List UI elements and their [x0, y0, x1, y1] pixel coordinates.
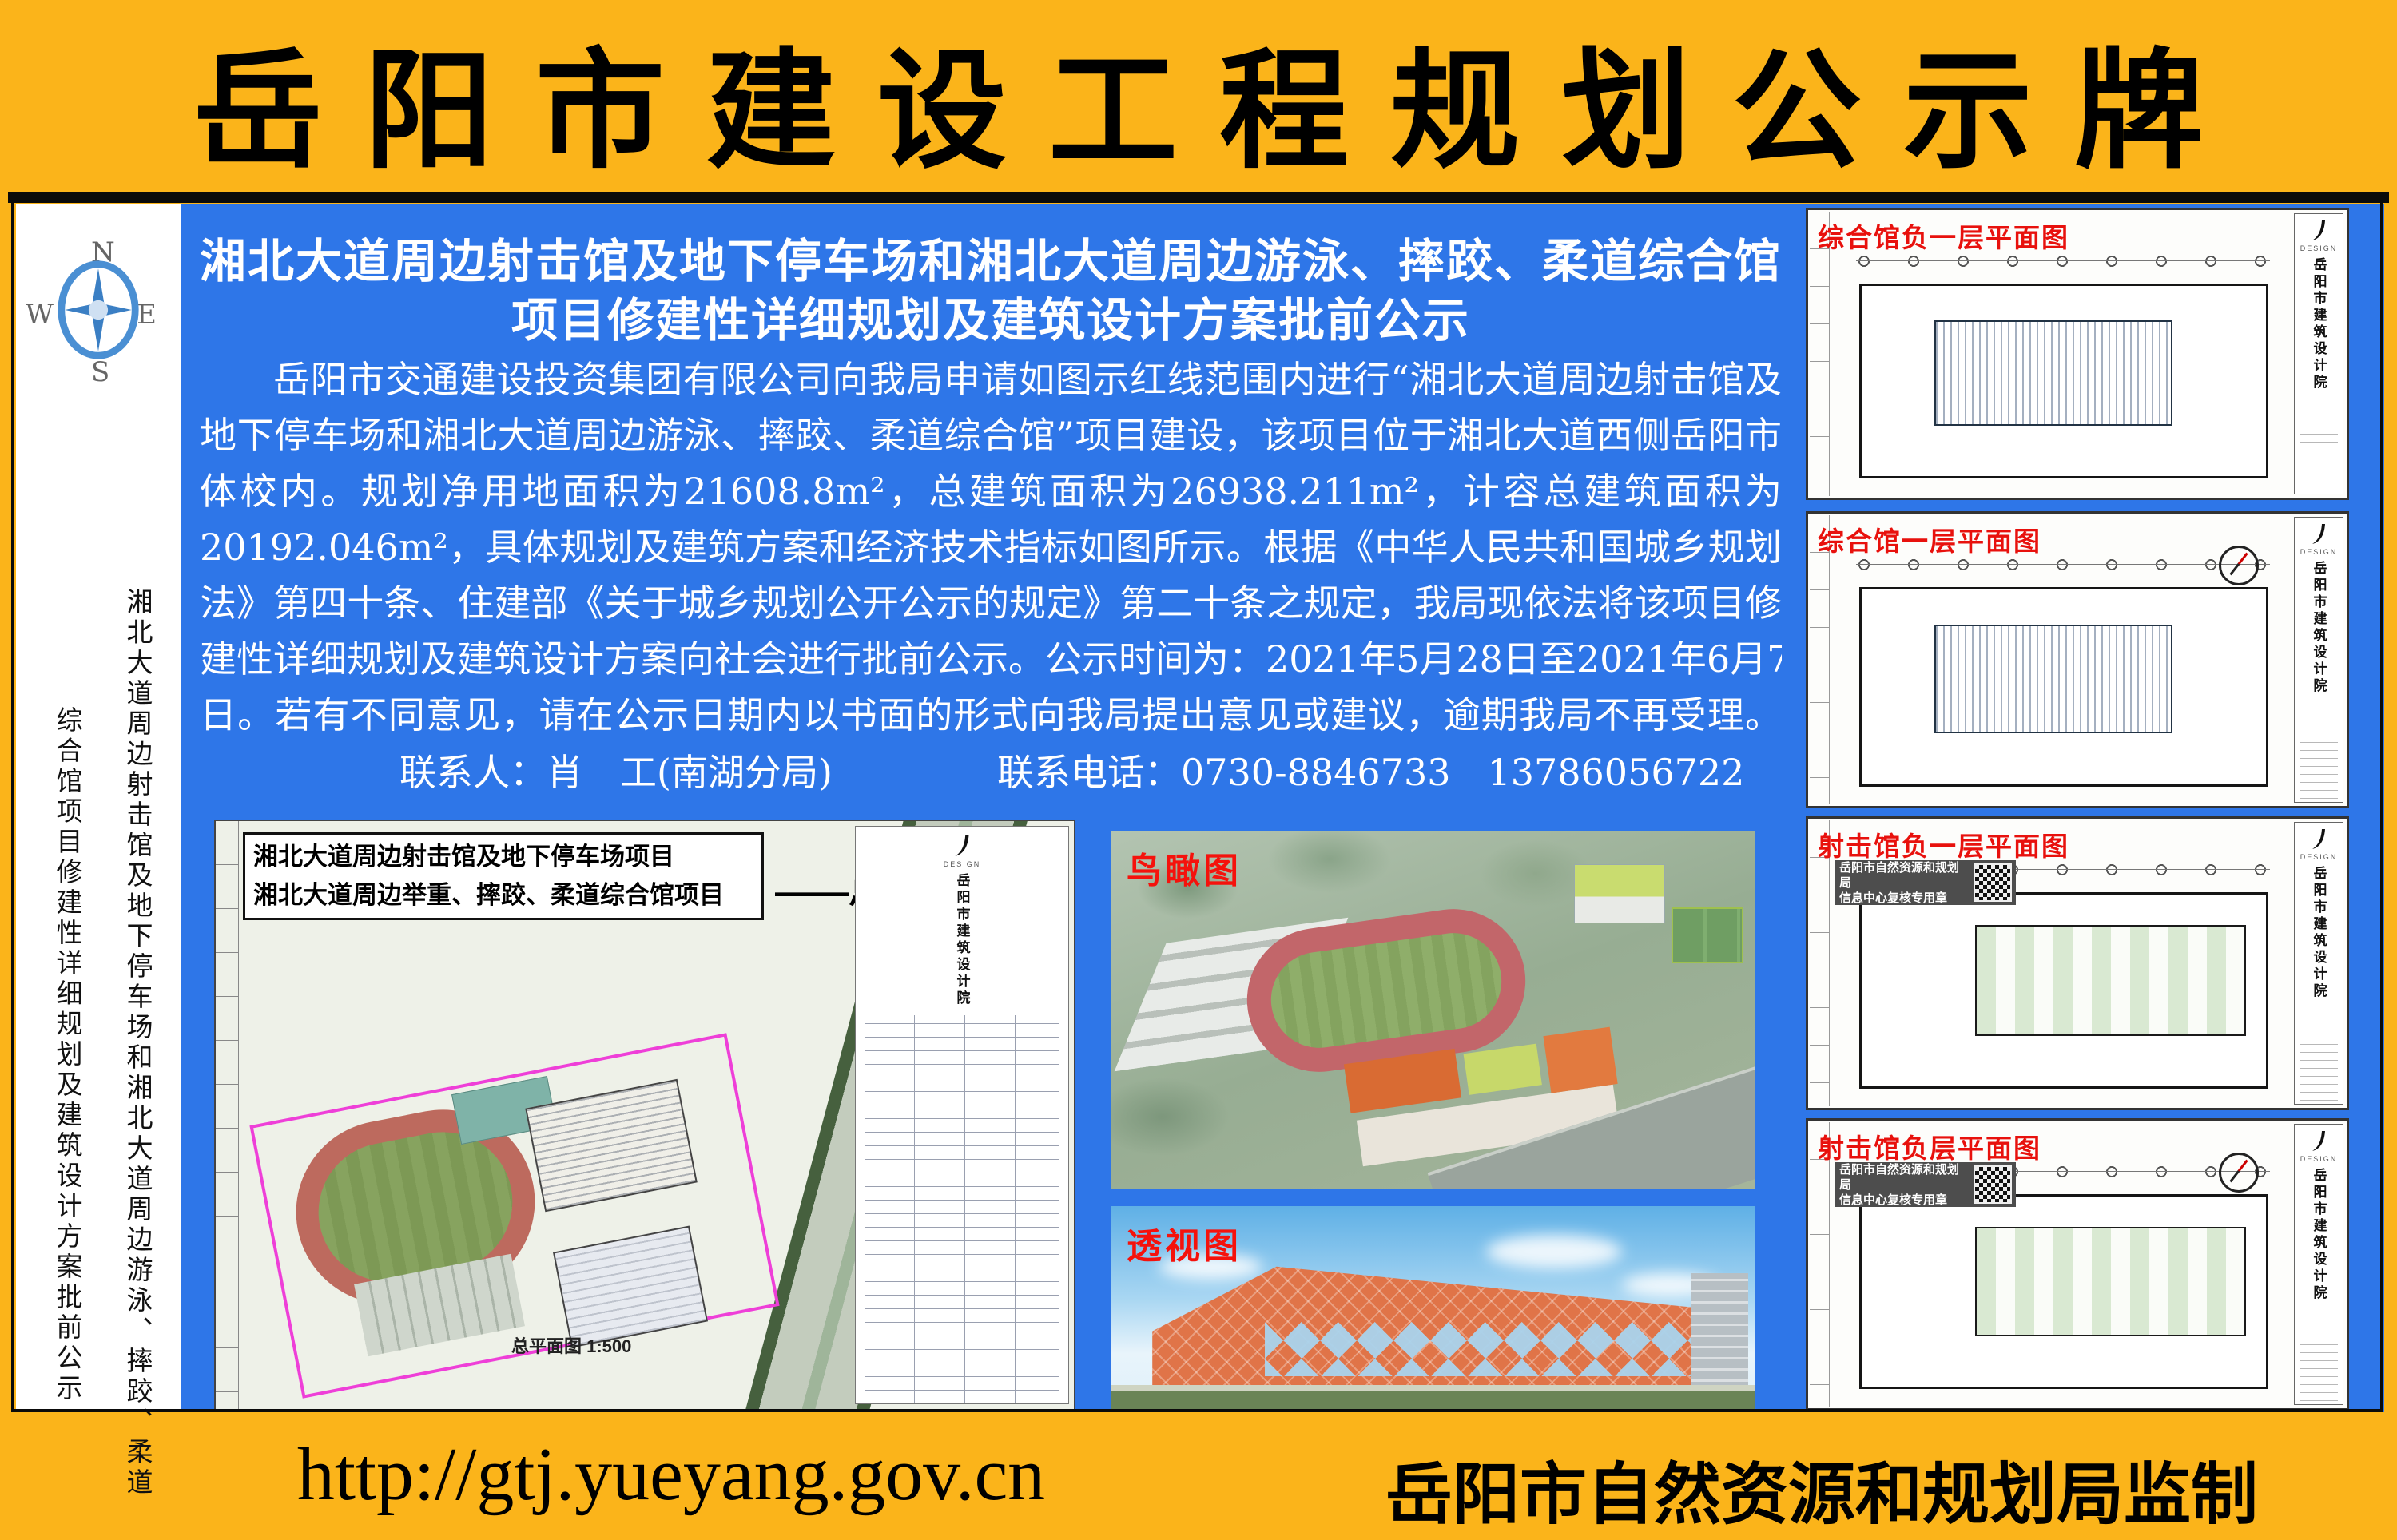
sheet-edge-strip [1810, 515, 1830, 804]
floor-plan-drawing [1859, 284, 2268, 478]
site-plan-header: 湘北大道周边射击馆及地下停车场项目 湘北大道周边举重、摔跤、柔道综合馆项目 [243, 832, 764, 920]
sidebar-title-line2: 综合馆项目修建性详细规划及建筑设计方案批前公示 [32, 588, 102, 1540]
floor-plan-panel-1: 综合馆负一层平面图 DESIGN 岳阳市建筑设计院 [1806, 208, 2349, 500]
compass-west-label: W [26, 299, 54, 331]
bird-eye-view-image: 鸟瞰图 [1111, 831, 1755, 1189]
floor-plan-drawing [1859, 587, 2268, 787]
drawing-title-2: 综合馆一层平面图 [1818, 520, 2041, 558]
design-institute-logo-icon [2309, 219, 2328, 243]
shooting-range-hatch [1975, 1227, 2246, 1336]
design-institute-logo-icon [2309, 828, 2328, 851]
grid-axis-bubbles [1856, 557, 2270, 573]
site-plan-caption: 总平面图 1:500 [511, 1332, 631, 1358]
parking-range-hatch [1975, 925, 2246, 1035]
bird-eye-view-label: 鸟瞰图 [1127, 842, 1242, 893]
institute-name: 岳阳市建筑设计院 [2309, 257, 2329, 391]
title-block: DESIGN 岳阳市建筑设计院 [2294, 822, 2343, 1105]
sidebar-vertical-title: 湘北大道周边射击馆及地下停车场和湘北大道周边游泳、摔跤、柔道 综合馆项目修建性详… [26, 588, 173, 1540]
notice-paragraph-line: 地下停车场和湘北大道周边游泳、摔跤、柔道综合馆”项目建设，该项目位于湘北大道西侧… [200, 407, 1782, 463]
qr-code-icon [1974, 863, 2012, 902]
logo-caption: DESIGN [944, 860, 981, 868]
title-block: DESIGN 岳阳市建筑设计院 [2294, 1124, 2343, 1405]
floor-plan-panel-4: 射击馆负层平面图 岳阳市自然资源和规划局 信息中心复核专用章 DESIGN 岳阳… [1806, 1118, 2349, 1411]
contact-phone: 联系电话：0730-8846733 13786056722 [997, 748, 1744, 797]
site-plan-image: 湘北大道周边射击馆及地下停车场项目 湘北大道周边举重、摔跤、柔道综合馆项目 ——… [214, 820, 1075, 1411]
pool-hatch [1934, 625, 2172, 733]
floor-plan-panel-2: 综合馆一层平面图 DESIGN 岳阳市建筑设计院 [1806, 511, 2349, 808]
stamp-line1: 岳阳市自然资源和规划局 [1839, 860, 1970, 891]
sports-field [1265, 927, 1508, 1054]
drawing-title-1: 综合馆负一层平面图 [1818, 216, 2069, 255]
floor-plan-drawing [1859, 892, 2268, 1089]
compass-icon: N E S W [38, 236, 158, 388]
indicator-table-rows [865, 1015, 1060, 1403]
design-institute-logo-icon [2309, 522, 2328, 546]
title-block-rows [2300, 1344, 2338, 1401]
site-plan-header-line2: 湘北大道周边举重、摔跤、柔道综合馆项目 [253, 876, 753, 915]
design-institute-logo-icon [2309, 1129, 2328, 1153]
title-block: DESIGN 岳阳市建筑设计院 [2294, 517, 2343, 803]
pool-hatch [1934, 320, 2172, 427]
drawing-title-4: 射击馆负层平面图 [1818, 1127, 2041, 1165]
review-stamp: 岳阳市自然资源和规划局 信息中心复核专用章 [1835, 1162, 2016, 1207]
design-institute-logo-icon [952, 833, 972, 859]
title-block-rows [2300, 433, 2338, 490]
facade-diamond-pattern [1265, 1322, 1714, 1377]
logo-caption: DESIGN [2300, 1155, 2338, 1163]
planning-notice-board: 岳阳市建设工程规划公示牌 N E S W 湘北大道周边射击馆及地下停车场和湘北大… [0, 0, 2397, 1540]
left-sidebar: N E S W 湘北大道周边射击馆及地下停车场和湘北大道周边游泳、摔跤、柔道 综… [16, 204, 181, 1412]
floor-plan-panel-3: 射击馆负一层平面图 岳阳市自然资源和规划局 信息中心复核专用章 DESIGN 岳… [1806, 816, 2349, 1110]
institute-name: 岳阳市建筑设计院 [2309, 1168, 2329, 1302]
notice-heading-line2: 项目修建性详细规划及建筑设计方案批前公示 [200, 283, 1782, 350]
stamp-line1: 岳阳市自然资源和规划局 [1839, 1162, 1970, 1193]
sidebar-title-line1: 湘北大道周边射击馆及地下停车场和湘北大道周边游泳、摔跤、柔道 [102, 588, 173, 1540]
institute-name: 岳阳市建筑设计院 [952, 873, 972, 1007]
stamp-line2: 信息中心复核专用章 [1839, 1193, 1970, 1208]
perspective-view-image: 透视图 [1111, 1206, 1755, 1411]
footer-authority: 岳阳市自然资源和规划局监制 [1318, 1441, 2325, 1538]
sheet-edge-strip [216, 821, 239, 1409]
contact-person: 联系人：肖 工(南湖分局) [399, 748, 833, 797]
logo-caption: DESIGN [2300, 548, 2338, 556]
notice-paragraph-line: 体校内。规划净用地面积为21608.8m²，总建筑面积为26938.211m²，… [200, 463, 1782, 519]
gym-building [1574, 864, 1665, 923]
drawing-title-3: 射击馆负一层平面图 [1818, 825, 2069, 863]
ground-strip [1111, 1385, 1755, 1411]
board-title: 岳阳市建设工程规划公示牌 [0, 34, 2397, 189]
grid-axis-bubbles [1856, 253, 2270, 269]
notice-paragraph-line: 建性详细规划及建筑设计方案向社会进行批前公示。公示时间为：2021年5月28日至… [200, 631, 1782, 687]
floor-plan-drawing [1859, 1194, 2268, 1389]
site-plan-header-line1: 湘北大道周边射击馆及地下停车场项目 [253, 838, 753, 876]
compass-rose-icon [54, 254, 142, 366]
basketball-courts [1672, 907, 1743, 963]
logo-caption: DESIGN [2300, 244, 2338, 252]
qr-code-icon [1974, 1165, 2012, 1204]
title-block-rows [2300, 1043, 2338, 1101]
footer-url: http://gtj.yueyang.gov.cn [176, 1431, 1167, 1518]
notice-heading-line1: 湘北大道周边射击馆及地下停车场和湘北大道周边游泳、摔跤、柔道综合馆 [200, 224, 1782, 291]
north-arrow-icon [2219, 1153, 2259, 1193]
site-plan-data-table: DESIGN 岳阳市建筑设计院 [855, 826, 1069, 1404]
stamp-line2: 信息中心复核专用章 [1839, 891, 1970, 906]
title-divider [8, 192, 2389, 203]
institute-name: 岳阳市建筑设计院 [2309, 866, 2329, 1000]
side-tower [1691, 1273, 1748, 1393]
north-arrow-icon [2219, 546, 2259, 585]
notice-paragraph-line: 法》第四十条、住建部《关于城乡规划公开公示的规定》第二十条之规定，我局现依法将该… [200, 575, 1782, 631]
title-block: DESIGN 岳阳市建筑设计院 [2294, 213, 2343, 494]
logo-caption: DESIGN [2300, 853, 2338, 861]
notice-paragraph-line: 日。若有不同意见，请在公示日期内以书面的形式向我局提出意见或建议，逾期我局不再受… [200, 687, 1782, 743]
review-stamp: 岳阳市自然资源和规划局 信息中心复核专用章 [1835, 860, 2016, 905]
institute-name: 岳阳市建筑设计院 [2309, 561, 2329, 695]
title-block-rows [2300, 741, 2338, 799]
notice-paragraph-line: 20192.046m²，具体规划及建筑方案和经济技术指标如图所示。根据《中华人民… [200, 519, 1782, 575]
notice-paragraph-line: 岳阳市交通建设投资集团有限公司向我局申请如图示红线范围内进行“湘北大道周边射击馆… [200, 351, 1782, 407]
perspective-view-label: 透视图 [1127, 1217, 1242, 1268]
cloud [1486, 1235, 1622, 1268]
